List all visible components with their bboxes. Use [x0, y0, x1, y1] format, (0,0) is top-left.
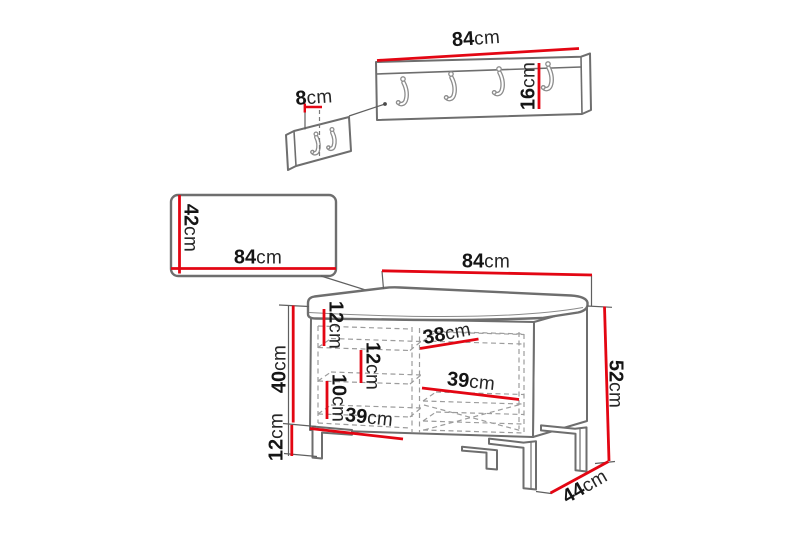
dim-compartment-middle-height-label: 12cm	[361, 342, 383, 390]
dim-bench-total-height: 52cm	[587, 306, 626, 464]
bench-side-face	[533, 307, 587, 437]
wall-panel-view: 42cm 84cm	[171, 195, 390, 299]
dim-panel-width-label: 84cm	[234, 247, 282, 269]
coat-rack-view: 84cm 16cm	[376, 26, 591, 120]
dim-compartment-top-height: 12cm	[324, 301, 346, 349]
bench-view: 84cm 52cm 44cm 40cm 12cm	[266, 251, 627, 509]
furniture-dimension-diagram: 84cm 16cm	[0, 0, 800, 533]
coat-rack-panel	[376, 54, 591, 121]
dim-bench-body-height-label: 40cm	[269, 345, 291, 393]
dim-compartment-middle-height: 12cm	[361, 342, 383, 390]
pointer-dot	[383, 102, 387, 106]
bench-leg-back-left	[462, 447, 497, 470]
dim-panel-height-label: 42cm	[179, 204, 201, 252]
dim-rack-height: 16cm	[518, 62, 540, 110]
dim-bench-depth: 44cm	[536, 462, 611, 509]
dim-rack-height-label: 16cm	[518, 62, 540, 110]
coat-rack-right-edge	[581, 57, 582, 114]
dim-rack-width-label: 84cm	[451, 26, 501, 51]
dim-bench-leg-height-label: 12cm	[266, 413, 288, 461]
dim-rack-width: 84cm	[377, 26, 579, 61]
coat-rack-side-view: 8cm	[286, 85, 387, 170]
dim-bench-width-label: 84cm	[462, 251, 510, 273]
dim-bench-total-height-label: 52cm	[604, 360, 626, 408]
dim-rack-depth-label: 8cm	[295, 85, 334, 110]
bench-cushion	[308, 287, 588, 320]
dim-compartment-top-height-label: 12cm	[324, 301, 346, 349]
